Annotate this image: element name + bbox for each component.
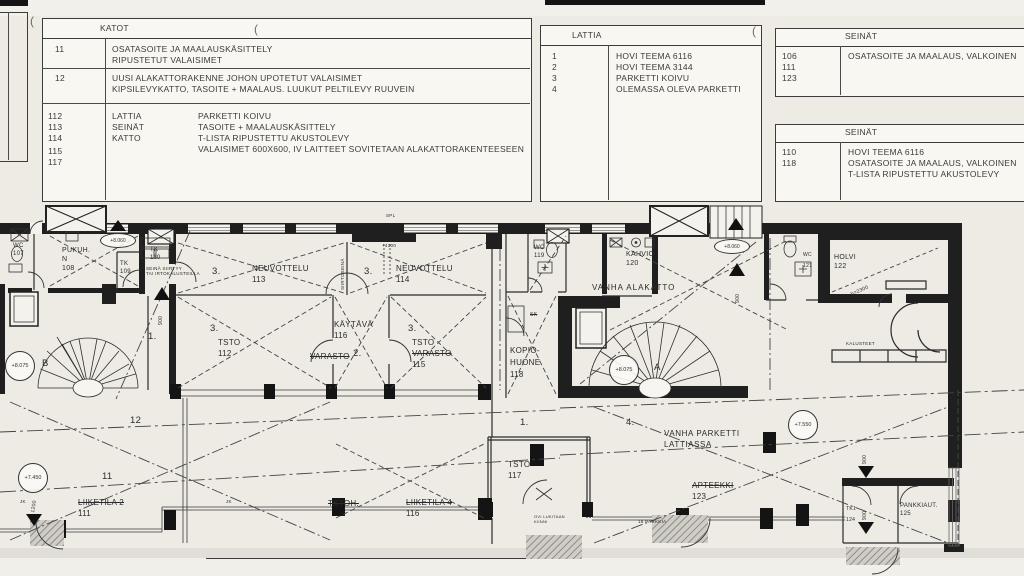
desc-cell: PARKETTI KOIVU <box>616 73 689 83</box>
room-number: 122 <box>834 262 856 271</box>
level-marker-a: +8.075 <box>609 355 639 385</box>
seinat1-title: SEINÄT <box>845 31 877 41</box>
stair-label-b: B <box>42 358 49 369</box>
room-name: TK <box>120 260 131 268</box>
room-name-struck: LIIKETILA 2 <box>78 497 124 508</box>
room-number: 116 <box>334 330 373 341</box>
scan-artifact: ( <box>30 14 34 28</box>
code-cell: 117 <box>48 157 62 167</box>
note-siirtoseina: SIIRTOSEINÄ <box>340 258 345 290</box>
note-jk: JK <box>20 499 26 504</box>
zone-number: 3. <box>210 323 219 334</box>
level-value: +8.075 <box>12 363 29 369</box>
room-name: TSTO <box>508 459 530 470</box>
room-number: 107 <box>13 250 24 258</box>
code-cell: 110 <box>782 147 796 157</box>
desc-cell: OSATASOITE JA MAALAUS, VALKOINEN <box>848 51 1017 61</box>
room-name-struck: VARASTO <box>412 348 452 359</box>
zone-number: 2. <box>353 348 362 359</box>
note-spl: SPL <box>386 213 395 218</box>
room-label-tk-109: TK 109 <box>120 260 131 276</box>
note-ovi-lukitaan: OVI LUKITAAN KIINNI <box>534 514 565 524</box>
room-number: 121 <box>803 261 812 272</box>
code-cell: 112 <box>48 111 62 121</box>
level-value: +7.450 <box>25 475 42 481</box>
level-marker-7450: +7.450 <box>18 463 48 493</box>
note-line: LATTIASSA <box>664 439 740 450</box>
room-number: 116 <box>406 508 452 519</box>
note-line: VANHA PARKETTI <box>664 428 740 439</box>
room-label-tsto-112: TSTO 112 <box>218 337 240 359</box>
note-plus4300: +4300 <box>382 243 396 248</box>
room-name: WC <box>13 242 24 250</box>
scan-artifact: ( <box>254 22 258 36</box>
room-number: 124 <box>846 515 856 526</box>
grid-line-number: 11 <box>102 471 112 482</box>
stair-label-a: A <box>654 362 661 373</box>
room-name: TSTO <box>218 337 240 348</box>
room-label-neuvottelu-114: NEUVOTTELU 114 <box>396 263 453 285</box>
desc-cell: HOVI TEEMA 3144 <box>616 62 693 72</box>
code-cell: 2 <box>552 62 557 72</box>
note-line: TAI IRTOKALUSTEILLA <box>146 271 200 276</box>
room-label-varasto-struck: VARASTO <box>310 352 350 361</box>
zone-number: 3. <box>364 266 373 277</box>
code-cell: 12 <box>55 73 65 83</box>
label-cell: KATTO <box>112 133 141 143</box>
room-label-wc-119: WC 119 <box>534 244 545 260</box>
desc-cell: HOVI TEEMA 6116 <box>848 147 924 157</box>
zone-number: 3. <box>212 266 221 277</box>
dim-900: 900 <box>862 455 868 464</box>
room-name: TK1 <box>846 504 856 515</box>
level-value: +8.060 <box>724 244 739 250</box>
code-cell: 11 <box>55 44 64 54</box>
desc-cell: OSATASOITE JA MAALAUS, VALKOINEN <box>848 158 1017 168</box>
lattia-col-divider <box>608 45 609 200</box>
room-name: HUONE <box>510 357 540 369</box>
room-name-struck: LIIKETILA 4 <box>406 497 452 508</box>
seinat2-header-box <box>775 124 1024 144</box>
room-label-tk1-124: TK1 124 <box>846 504 856 526</box>
seinat2-col-divider <box>840 142 841 200</box>
room-label-pukuh-108: PUKUH. N 108 <box>62 246 90 273</box>
zone-number: 1. <box>520 417 529 428</box>
seinat1-header-box <box>775 28 1024 48</box>
room-name: NEUVOTTELU <box>252 263 309 274</box>
code-cell: 114 <box>48 133 62 143</box>
desc-cell: OSATASOITE JA MAALAUSKÄSITTELY <box>112 44 273 54</box>
zone-number: 1. <box>148 331 157 342</box>
scan-artifact: ( <box>752 24 756 38</box>
room-number: 123 <box>692 491 734 502</box>
room-number: 125 <box>900 510 938 518</box>
desc-cell: T-LISTA RIPUSTETTU AKUSTOLEVY <box>198 133 349 143</box>
code-cell: 4 <box>552 84 557 94</box>
scanned-floor-plan-sheet: { "legend": { "katot": { "title": "KATOT… <box>0 0 1024 576</box>
dim-900: 900 <box>735 294 741 303</box>
room-number: 119 <box>534 252 545 260</box>
room-label-kopiohuone-118: KOPIO- HUONE 118 <box>510 345 540 381</box>
room-label-tsto-varasto-115: TSTO VARASTO 115 <box>412 337 452 370</box>
desc-cell: T-LISTA RIPUSTETTU AKUSTOLEVY <box>848 169 999 179</box>
code-cell: 113 <box>48 122 62 132</box>
desc-cell: OLEMASSA OLEVA PARKETTI <box>616 84 741 94</box>
code-cell: 3 <box>552 73 557 83</box>
room-number: 108 <box>62 264 90 273</box>
note-seina-siirtyy: SEINÄ SIIRTYY TAI IRTOKALUSTEILLA <box>146 266 200 276</box>
level-marker-8060-left: +8.060 <box>100 233 136 248</box>
room-number: 117 <box>508 470 530 481</box>
room-label-holvi-122: HOLVI 122 <box>834 253 856 271</box>
grid-line-number: 12 <box>130 415 141 426</box>
zone-number: 3. <box>408 323 417 334</box>
seinat2-title: SEINÄT <box>845 127 877 137</box>
room-name: KAHVIO <box>626 250 654 259</box>
desc-cell: UUSI ALAKATTORAKENNE JOHON UPOTETUT VALA… <box>112 73 362 83</box>
room-label-tstoh-struck: TSTOH. <box>328 499 359 508</box>
room-label-tk-110: TK 110 <box>150 246 160 262</box>
room-name: PUKUH. <box>62 246 90 255</box>
level-value: +7.550 <box>795 422 812 428</box>
code-cell: 118 <box>782 158 796 168</box>
partial-box-line <box>8 12 9 160</box>
level-value: +8.060 <box>110 238 125 244</box>
partial-box <box>0 12 28 162</box>
room-name: WC <box>534 244 545 252</box>
label-cell: LATTIA <box>112 111 142 121</box>
room-name: TK <box>150 246 160 254</box>
level-marker-b: +8.075 <box>5 351 35 381</box>
code-cell: 111 <box>782 62 796 72</box>
label-cell: SEINÄT <box>112 122 144 132</box>
room-number: 120 <box>626 259 654 268</box>
desc-cell: RIPUSTETUT VALAISIMET <box>112 55 222 65</box>
seinat1-col-divider <box>840 46 841 95</box>
katot-row-divider <box>42 103 530 104</box>
desc-cell: PARKETTI KOIVU <box>198 111 271 121</box>
desc-cell: VALAISIMET 600X600, IV LAITTEET SOVITETA… <box>198 144 524 154</box>
room-label-liiketila-4: LIIKETILA 4 116 <box>406 497 452 519</box>
code-cell: 115 <box>48 146 62 156</box>
note-line: KIINNI <box>534 519 565 524</box>
room-number: 118 <box>510 369 540 381</box>
level-marker-7550: +7.550 <box>788 410 818 440</box>
room-name: TSTO <box>412 337 452 348</box>
desc-cell: HOVI TEEMA 6116 <box>616 51 692 61</box>
room-number: 115 <box>412 359 452 370</box>
katot-row-divider <box>42 68 530 69</box>
room-name: PANKKIAUT. <box>900 502 938 510</box>
room-label-neuvottelu-113: NEUVOTTELU 113 <box>252 263 309 285</box>
room-name: KOPIO- <box>510 345 540 357</box>
room-number: 114 <box>396 274 453 285</box>
level-value: +8.075 <box>616 367 633 373</box>
room-label-kahvio-120: KAHVIO 120 <box>626 250 654 268</box>
dim-900: 900 <box>158 316 164 325</box>
room-label-wc-121: WC 121 <box>803 250 812 272</box>
room-name: N <box>62 255 90 264</box>
room-label-pankkiaut-125: PANKKIAUT. 125 <box>900 502 938 518</box>
note-jk: JK <box>226 499 232 504</box>
room-label-tsto-117: TSTO 117 <box>508 459 530 481</box>
room-name: WC <box>803 250 812 261</box>
desc-cell: KIPSILEVYKATTO, TASOITE + MAALAUS. LUUKU… <box>112 84 415 94</box>
zone-number: 4. <box>626 417 635 428</box>
dim-900: 900 <box>862 511 868 520</box>
stair-fan-b <box>38 337 138 397</box>
room-number: 110 <box>150 254 160 262</box>
note-sk: SK <box>530 312 537 318</box>
room-name: HOLVI <box>834 253 856 262</box>
room-name: NEUVOTTELU <box>396 263 453 274</box>
room-number: 113 <box>252 274 309 285</box>
room-label-apteekki-123: APTEEKKI 123 <box>692 480 734 502</box>
room-name-struck: APTEEKKI <box>692 480 734 491</box>
desc-cell: TASOITE + MAALAUSKÄSITTELY <box>198 122 336 132</box>
room-name: KÄYTÄVÄ <box>334 319 373 330</box>
note-kalusteet: KALUSTEET <box>846 341 875 346</box>
level-marker-8060-right: +8.060 <box>714 239 750 254</box>
note-vanha-alakatto: VANHA ALAKATTO <box>592 283 675 292</box>
lattia-title: LATTIA <box>572 30 602 40</box>
room-number: 111 <box>78 508 124 519</box>
room-number: 112 <box>218 348 240 359</box>
dashed-lines <box>0 231 1024 545</box>
room-number: 109 <box>120 268 131 276</box>
room-label-wc-107: WC 107 <box>13 242 24 258</box>
room-label-liiketila-2: LIIKETILA 2 111 <box>78 497 124 519</box>
code-cell: 123 <box>782 73 797 83</box>
note-parkkia: 18 PARKKIA <box>638 519 666 524</box>
room-label-kaytava-116: KÄYTÄVÄ 116 <box>334 319 373 341</box>
katot-col-divider <box>105 38 106 200</box>
code-cell: 1 <box>552 51 557 61</box>
katot-title: KATOT <box>100 23 129 33</box>
note-vanha-parketti: VANHA PARKETTI LATTIASSA <box>664 428 740 450</box>
code-cell: 106 <box>782 51 797 61</box>
